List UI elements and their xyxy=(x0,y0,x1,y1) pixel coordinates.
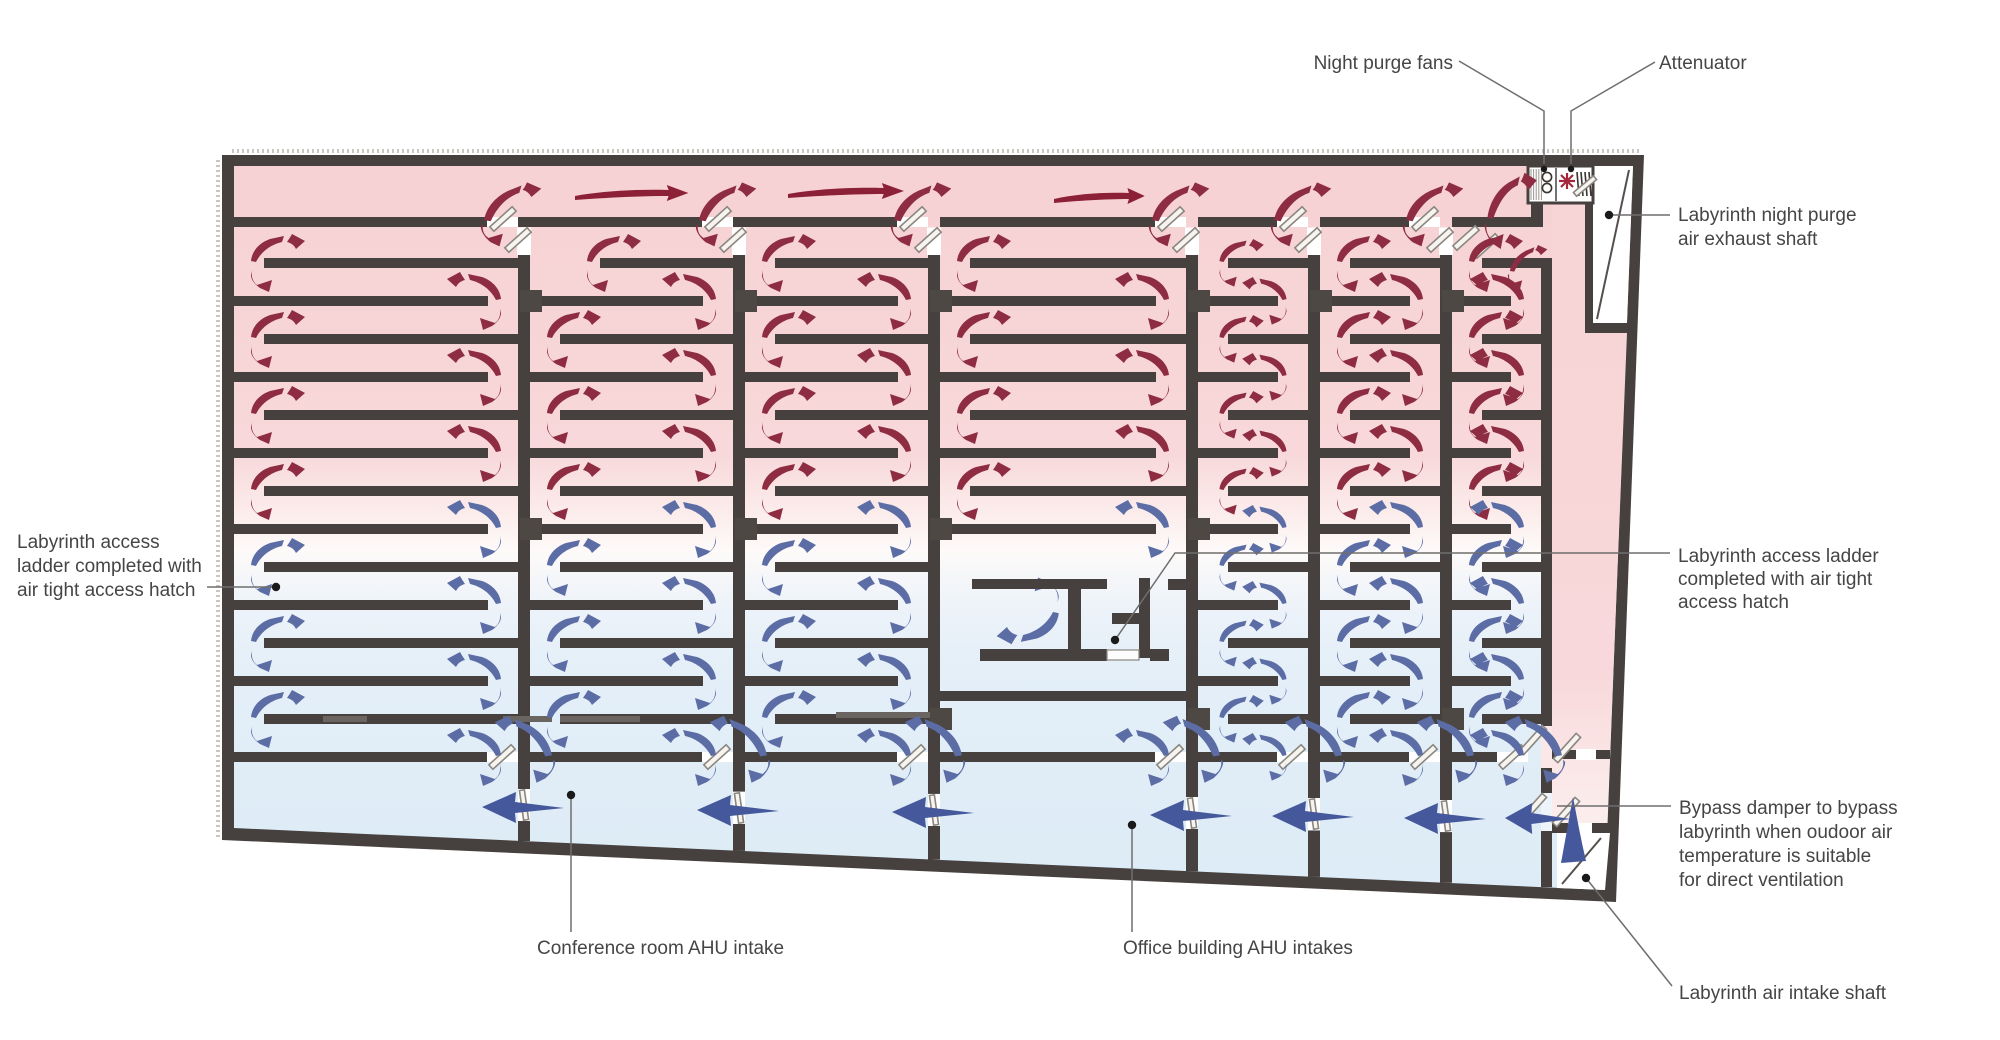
svg-text:labyrinth when oudoor air: labyrinth when oudoor air xyxy=(1679,822,1893,843)
svg-text:completed with air tight: completed with air tight xyxy=(1678,569,1873,590)
svg-text:Labyrinth night purge: Labyrinth night purge xyxy=(1678,205,1857,226)
svg-text:Labyrinth access: Labyrinth access xyxy=(17,532,160,553)
svg-text:temperature is suitable: temperature is suitable xyxy=(1679,846,1871,867)
svg-text:air tight access hatch: air tight access hatch xyxy=(17,580,195,601)
svg-text:Labyrinth air intake shaft: Labyrinth air intake shaft xyxy=(1679,983,1887,1004)
svg-text:access hatch: access hatch xyxy=(1678,592,1789,613)
svg-text:Labyrinth access ladder: Labyrinth access ladder xyxy=(1678,546,1879,567)
svg-text:Attenuator: Attenuator xyxy=(1659,53,1747,74)
svg-text:Bypass damper to bypass: Bypass damper to bypass xyxy=(1679,798,1898,819)
svg-text:for direct ventilation: for direct ventilation xyxy=(1679,870,1844,891)
svg-text:Night purge fans: Night purge fans xyxy=(1314,53,1453,74)
svg-text:air exhaust shaft: air exhaust shaft xyxy=(1678,229,1818,250)
svg-text:Office building AHU intakes: Office building AHU intakes xyxy=(1123,938,1353,959)
svg-text:ladder completed with: ladder completed with xyxy=(17,556,202,577)
svg-text:Conference room AHU intake: Conference room AHU intake xyxy=(537,938,784,959)
